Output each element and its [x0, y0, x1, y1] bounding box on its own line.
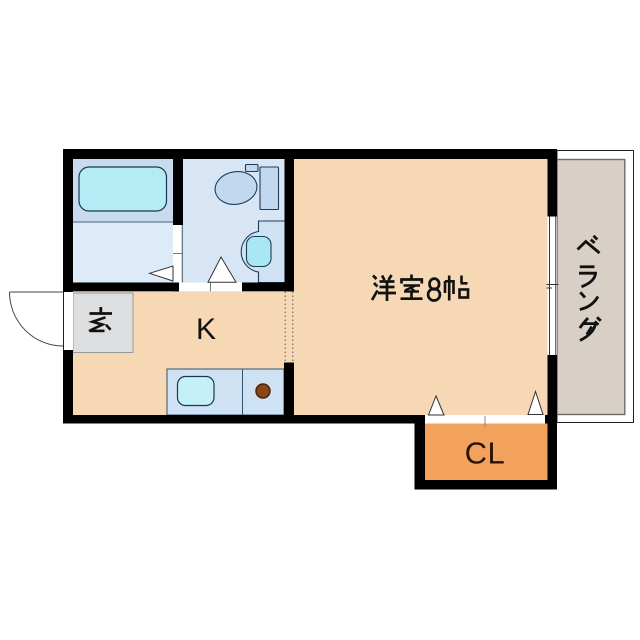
svg-text:K: K [196, 313, 216, 346]
svg-text:CL: CL [465, 436, 506, 471]
